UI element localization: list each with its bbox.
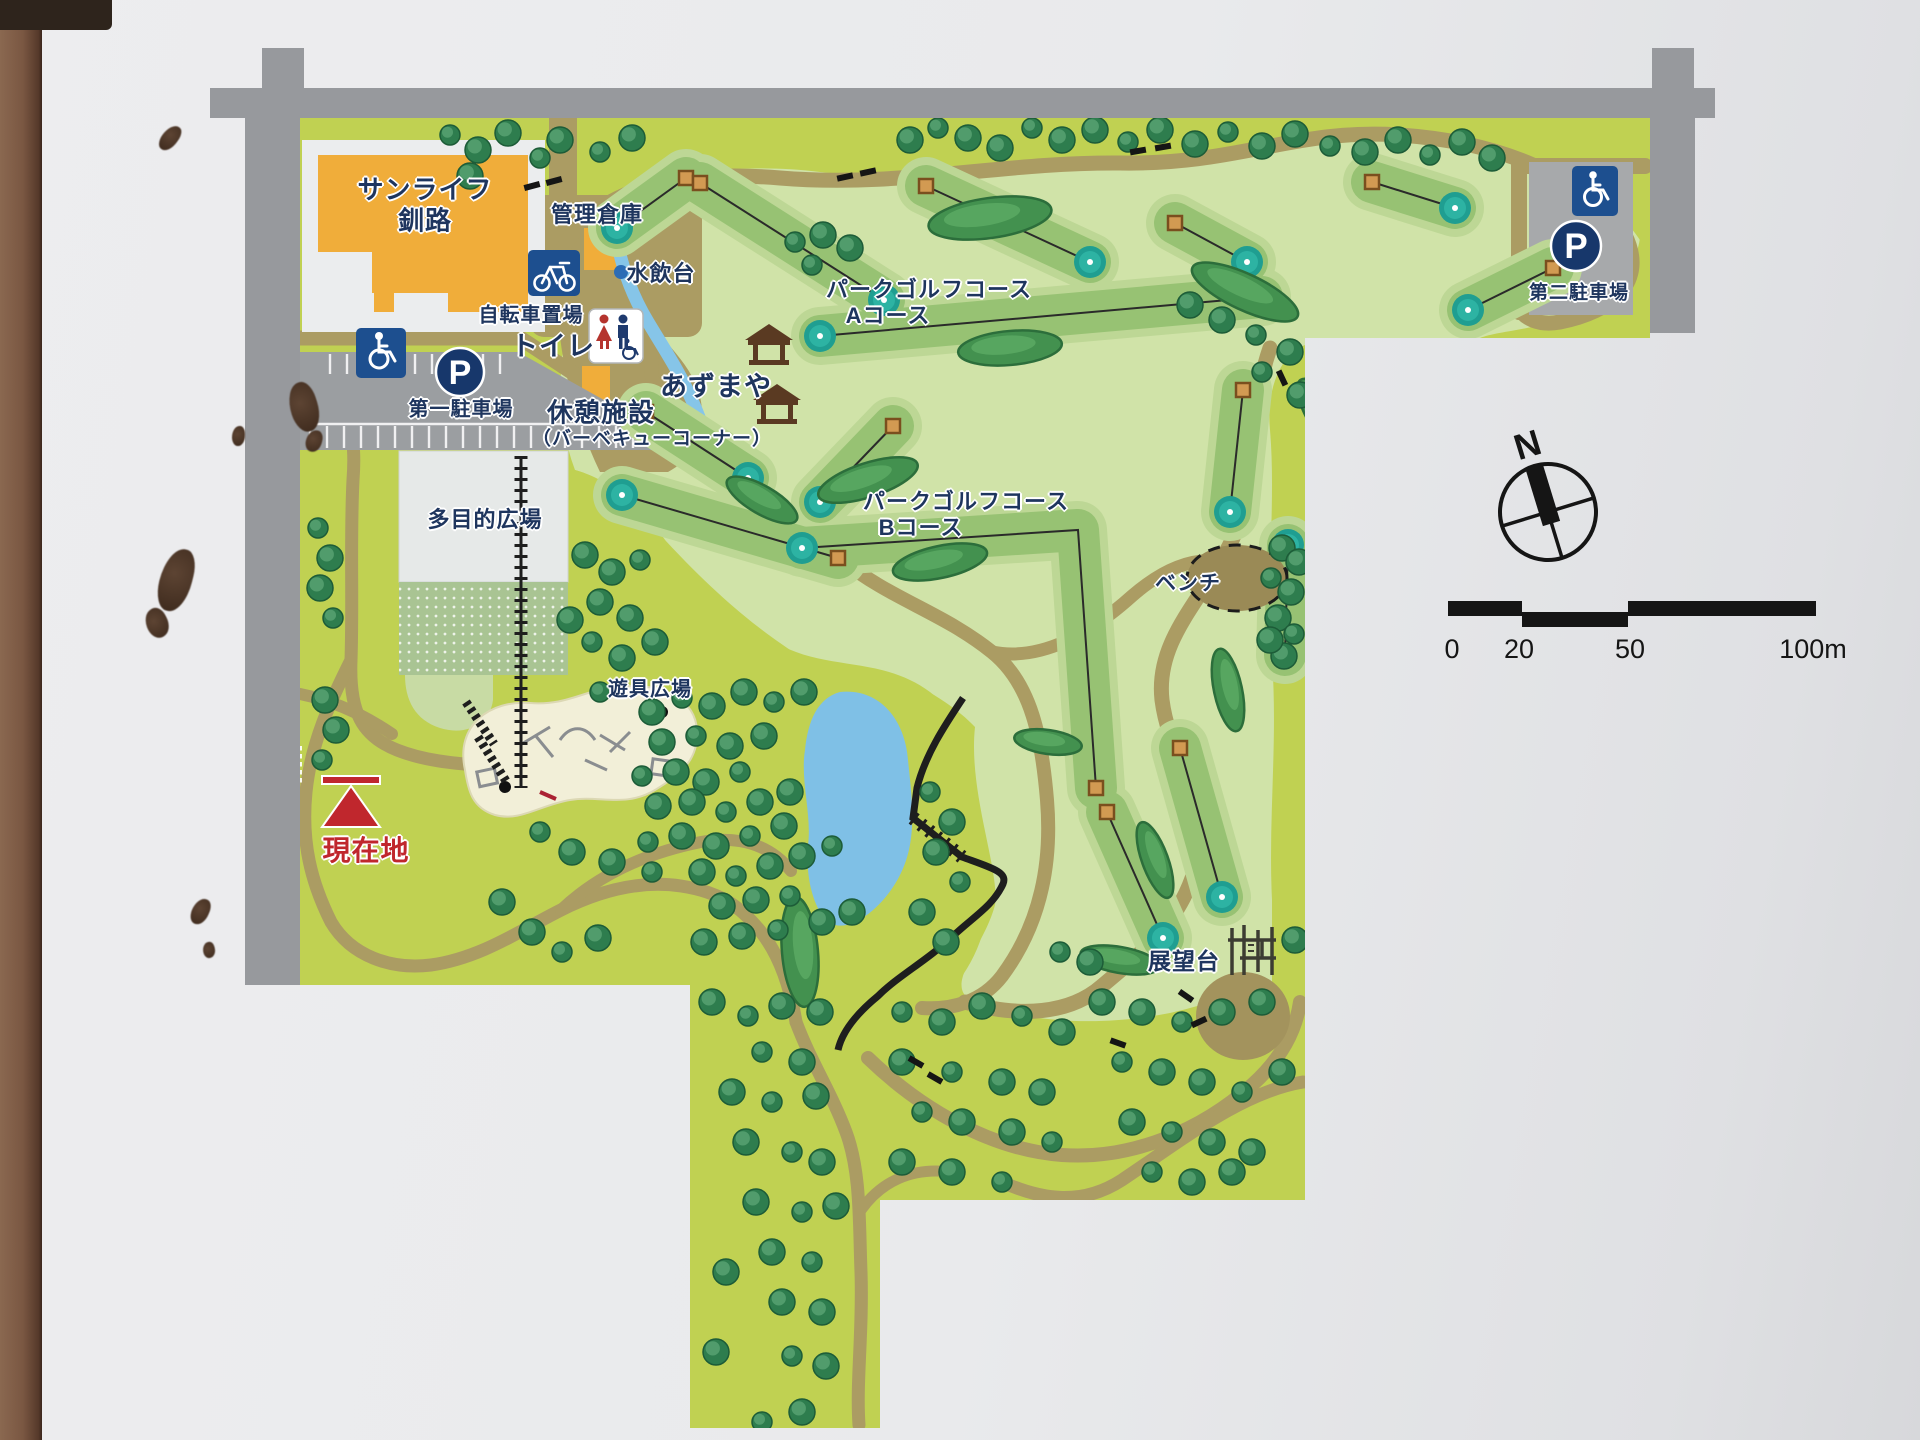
east-edge-strip: [1269, 345, 1305, 1085]
tree-highlight: [992, 1071, 1006, 1085]
park-map: P P: [0, 0, 1920, 1440]
tree-highlight: [696, 771, 710, 785]
tree-highlight: [718, 804, 729, 815]
tree-highlight: [732, 925, 746, 939]
tree-highlight: [532, 824, 543, 835]
tree-highlight: [1285, 929, 1299, 943]
label-multipurpose-field: 多目的広場: [427, 502, 542, 534]
tee-box: [1365, 175, 1379, 189]
tree-highlight: [602, 851, 616, 865]
road-stub-top-left: [262, 48, 304, 92]
tree-highlight: [774, 815, 788, 829]
scale-tick-100: 100m: [1779, 634, 1847, 664]
tree-highlight: [930, 120, 941, 131]
label-bicycle-parking: 自転車置場: [479, 299, 584, 328]
tee-box: [1236, 383, 1250, 397]
tree-highlight: [762, 1241, 776, 1255]
hedge-highlight: [1303, 384, 1358, 451]
compass-n-label: N: [1509, 421, 1546, 468]
label-toilet: トイレ: [511, 325, 595, 364]
tree-highlight: [816, 1355, 830, 1369]
tree-highlight: [1174, 1014, 1185, 1025]
tree-highlight: [1248, 327, 1259, 338]
parking-icon-2: P: [1551, 221, 1601, 271]
tree-highlight: [634, 768, 645, 779]
tree-highlight: [1286, 626, 1297, 637]
tree-highlight: [812, 1151, 826, 1165]
tree-highlight: [754, 1414, 765, 1425]
tree-highlight: [764, 1094, 775, 1105]
tree-highlight: [640, 834, 651, 845]
tee-box: [1173, 741, 1187, 755]
tree-highlight: [1242, 1141, 1256, 1155]
tree-highlight: [1322, 138, 1333, 149]
tree-highlight: [824, 838, 835, 849]
tree-highlight: [772, 1291, 786, 1305]
tree-highlight: [892, 1151, 906, 1165]
tree-highlight: [922, 784, 933, 795]
tree-highlight: [694, 931, 708, 945]
tree-highlight: [1014, 1008, 1025, 1019]
tree-highlight: [550, 129, 564, 143]
tree-highlight: [1052, 1021, 1066, 1035]
tree-highlight: [1192, 1071, 1206, 1085]
tree-highlight: [1114, 1054, 1125, 1065]
tree-highlight: [1422, 147, 1433, 158]
tree-highlight: [722, 1081, 736, 1095]
tree-highlight: [1120, 134, 1131, 145]
tree-highlight: [562, 841, 576, 855]
label-parking-2: 第二駐車場: [1529, 278, 1629, 305]
tree-highlight: [1252, 135, 1266, 149]
tree-highlight: [590, 591, 604, 605]
hole-cup: [817, 333, 823, 339]
tree-highlight: [642, 701, 656, 715]
tree-highlight: [1085, 119, 1099, 133]
tree-highlight: [672, 825, 686, 839]
tee-box: [831, 551, 845, 565]
tree-highlight: [314, 752, 325, 763]
tree-highlight: [1272, 537, 1286, 551]
tree-highlight: [1285, 123, 1299, 137]
label-parking-1: 第一駐車場: [409, 393, 514, 422]
tree-highlight: [1185, 133, 1199, 147]
tree-highlight: [1044, 1134, 1055, 1145]
tree-highlight: [1254, 364, 1265, 375]
park-map-sign-photo: P P: [0, 0, 1920, 1440]
road-right: [1650, 112, 1695, 333]
tree-highlight: [754, 725, 768, 739]
tee-box: [886, 419, 900, 433]
tree-highlight: [1212, 309, 1226, 323]
accessible-parking-icon-2: [1572, 166, 1618, 216]
label-bbq-corner: （バーベキューコーナー）: [532, 424, 772, 451]
tree-highlight: [794, 1204, 805, 1215]
tree-highlight: [702, 695, 716, 709]
label-warehouse: 管理倉庫: [551, 197, 643, 229]
tree-highlight: [1234, 1084, 1245, 1095]
tree-highlight: [780, 781, 794, 795]
svg-text:P: P: [449, 354, 472, 392]
tree-highlight: [1164, 1124, 1175, 1135]
tree-highlight: [632, 552, 643, 563]
tree-highlight: [620, 607, 634, 621]
tree-highlight: [692, 861, 706, 875]
tree-highlight: [706, 835, 720, 849]
tree-highlight: [794, 681, 808, 695]
tree-highlight: [1002, 1121, 1016, 1135]
tree-highlight: [1272, 1061, 1286, 1075]
tree-highlight: [622, 127, 636, 141]
tree-highlight: [326, 719, 340, 733]
tree-highlight: [1150, 119, 1164, 133]
tree-highlight: [736, 1131, 750, 1145]
tree-highlight: [750, 791, 764, 805]
tree-highlight: [806, 1085, 820, 1099]
tree-highlight: [1024, 120, 1035, 131]
tree-highlight: [914, 1104, 925, 1115]
tree-highlight: [770, 922, 781, 933]
svg-text:P: P: [1564, 227, 1587, 266]
tree-highlight: [1260, 629, 1274, 643]
label-gazebo: あずまや: [660, 365, 772, 404]
tree-highlight: [842, 901, 856, 915]
tree-highlight: [1180, 294, 1194, 308]
tree-highlight: [442, 127, 453, 138]
tree-highlight: [712, 895, 726, 909]
tree-highlight: [1452, 131, 1466, 145]
tree-highlight: [592, 144, 603, 155]
tree-highlight: [1144, 1164, 1155, 1175]
tree-highlight: [892, 1051, 906, 1065]
tree-highlight: [588, 927, 602, 941]
tree-highlight: [554, 944, 565, 955]
tree-highlight: [732, 764, 743, 775]
label-course-a-line2: Aコース: [846, 298, 931, 330]
hole-cup: [1219, 894, 1225, 900]
parking-icon-1: P: [436, 348, 484, 396]
tree-highlight: [688, 728, 699, 739]
tee-box: [679, 171, 693, 185]
hole-cup: [1452, 205, 1458, 211]
tree-highlight: [746, 1191, 760, 1205]
tree-highlight: [772, 995, 786, 1009]
tree-highlight: [792, 845, 806, 859]
tree-highlight: [804, 257, 815, 268]
tree-highlight: [498, 122, 512, 136]
scale-bar: 0 20 50 100m: [1444, 601, 1846, 664]
tree-highlight: [932, 1011, 946, 1025]
tree-highlight: [754, 1044, 765, 1055]
tree-highlight: [1092, 991, 1106, 1005]
tree-highlight: [1202, 1131, 1216, 1145]
tree-highlight: [840, 237, 854, 251]
tee-box: [919, 179, 933, 193]
tree-highlight: [812, 1301, 826, 1315]
tree-highlight: [1122, 1111, 1136, 1125]
tree-highlight: [912, 901, 926, 915]
tree-highlight: [666, 761, 680, 775]
tree-highlight: [492, 891, 506, 905]
sign-frame: [0, 0, 42, 1440]
tree-highlight: [1388, 129, 1402, 143]
tree-highlight: [310, 520, 321, 531]
tree-highlight: [1355, 141, 1369, 155]
tree-highlight: [648, 795, 662, 809]
tee-box: [1100, 805, 1114, 819]
tree-highlight: [826, 1195, 840, 1209]
tree-highlight: [532, 150, 543, 161]
tree-highlight: [1281, 581, 1295, 595]
tree-highlight: [972, 995, 986, 1009]
hole-cup: [619, 492, 625, 498]
tree-highlight: [958, 127, 972, 141]
tree-highlight: [602, 561, 616, 575]
scale-tick-20: 20: [1504, 634, 1534, 664]
tree-highlight: [926, 841, 940, 855]
tee-box: [1168, 216, 1182, 230]
hole-cup: [1160, 935, 1166, 941]
tree-highlight: [716, 1261, 730, 1275]
tree-highlight: [813, 224, 827, 238]
label-bench: ベンチ: [1155, 567, 1221, 597]
tree-highlight: [1032, 1081, 1046, 1095]
tree-highlight: [652, 731, 666, 745]
tee-box: [693, 176, 707, 190]
tree-highlight: [944, 1064, 955, 1075]
label-sunlife-line2: 釧路: [398, 201, 452, 238]
scale-tick-50: 50: [1615, 634, 1645, 664]
tree-highlight: [1212, 1001, 1226, 1015]
tree-highlight: [584, 634, 595, 645]
tree-highlight: [320, 547, 334, 561]
tree-highlight: [742, 828, 753, 839]
tee-box: [1089, 781, 1103, 795]
tree-highlight: [644, 864, 655, 875]
tree-highlight: [1080, 951, 1094, 965]
tree-highlight: [810, 1001, 824, 1015]
tree-highlight: [942, 1161, 956, 1175]
tree-highlight: [682, 791, 696, 805]
tree-highlight: [1132, 1001, 1146, 1015]
label-playground: 遊具広場: [608, 673, 692, 702]
label-observation-deck: 展望台: [1148, 942, 1220, 976]
tree-highlight: [522, 921, 536, 935]
tree-highlight: [645, 631, 659, 645]
tree-highlight: [1222, 1161, 1236, 1175]
tree-highlight: [1289, 551, 1303, 565]
tree-highlight: [952, 1111, 966, 1125]
label-course-b-line2: Bコース: [879, 510, 964, 542]
tree-highlight: [792, 1051, 806, 1065]
tree-highlight: [1182, 1171, 1196, 1185]
hole-cup: [799, 545, 805, 551]
tree-highlight: [575, 544, 589, 558]
tree-highlight: [746, 889, 760, 903]
tree-highlight: [702, 991, 716, 1005]
tree-highlight: [792, 1401, 806, 1415]
tree-highlight: [784, 1144, 795, 1155]
bicycle-icon: [528, 250, 580, 296]
road-stub-top-right: [1652, 48, 1694, 92]
compass-rose: N: [1475, 411, 1607, 572]
tree-highlight: [1268, 607, 1282, 621]
tree-highlight: [1290, 384, 1304, 398]
hole-cup: [1227, 509, 1233, 515]
tree-highlight: [728, 868, 739, 879]
hole-cup: [1244, 259, 1250, 265]
tree-highlight: [942, 811, 956, 825]
tree-highlight: [1220, 124, 1231, 135]
tree-highlight: [315, 689, 329, 703]
tree-highlight: [468, 139, 482, 153]
scale-tick-0: 0: [1444, 634, 1459, 664]
tree-highlight: [1052, 129, 1066, 143]
tree-highlight: [760, 855, 774, 869]
tree-highlight: [952, 874, 963, 885]
tree-highlight: [560, 609, 574, 623]
hole-cup: [1087, 259, 1093, 265]
tree-highlight: [900, 129, 914, 143]
tree-highlight: [784, 1348, 795, 1359]
tree-highlight: [1252, 991, 1266, 1005]
tree-highlight: [310, 577, 324, 591]
accessible-parking-icon-1: [356, 328, 406, 378]
toilet-icon: [589, 309, 643, 363]
tree-highlight: [1263, 570, 1274, 581]
tree-highlight: [787, 234, 798, 245]
hole-cup: [1465, 307, 1471, 313]
tree-highlight: [612, 647, 626, 661]
road-left: [245, 112, 300, 985]
tree-highlight: [734, 681, 748, 695]
label-current-location: 現在地: [322, 829, 409, 869]
tree-highlight: [990, 137, 1004, 151]
tree-highlight: [1152, 1061, 1166, 1075]
tree-highlight: [1482, 147, 1496, 161]
tree-highlight: [325, 610, 336, 621]
tree-highlight: [994, 1174, 1005, 1185]
tree-highlight: [782, 888, 793, 899]
tree-highlight: [706, 1341, 720, 1355]
tree-highlight: [812, 911, 826, 925]
tree-highlight: [592, 684, 603, 695]
frame-corner: [0, 0, 112, 30]
tree-highlight: [804, 1254, 815, 1265]
tree-highlight: [894, 1004, 905, 1015]
tree-highlight: [936, 931, 950, 945]
tree-highlight: [766, 694, 777, 705]
tree-highlight: [1052, 944, 1063, 955]
label-water-fountain: 水飲台: [626, 256, 695, 288]
tree-highlight: [740, 1008, 751, 1019]
tree-highlight: [720, 735, 734, 749]
tree-highlight: [1280, 341, 1294, 355]
